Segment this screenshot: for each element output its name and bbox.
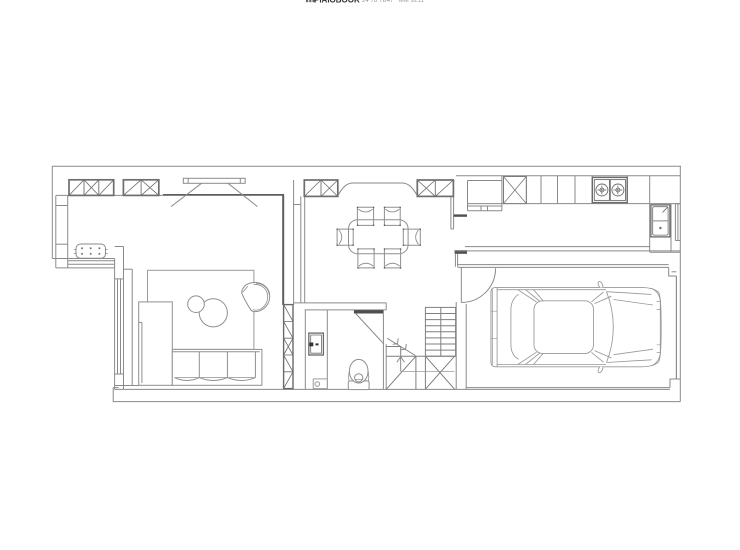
svg-text:24 78 7B47: 24 78 7B47 (362, 0, 394, 4)
svg-text:MM 9211: MM 9211 (399, 0, 424, 4)
svg-text:PIAIOBOOR: PIAIOBOOR (314, 0, 360, 4)
